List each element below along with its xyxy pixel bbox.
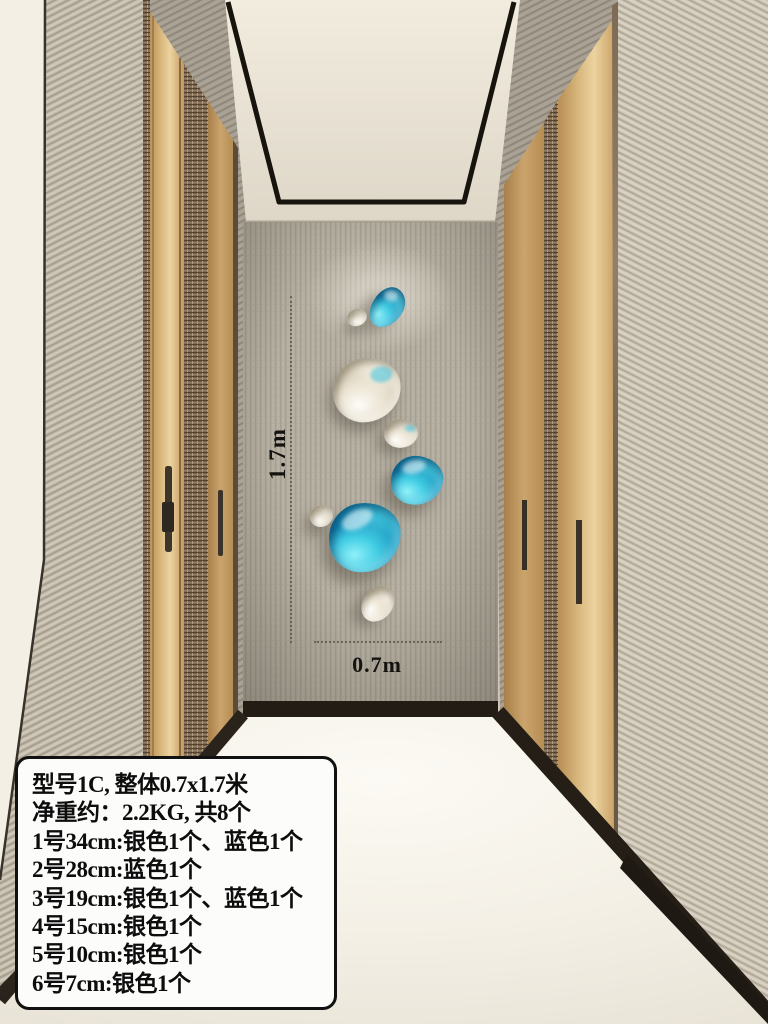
right-door-back	[504, 122, 544, 775]
left-corner-pillar	[238, 148, 243, 748]
left-pillar-edge-trim	[143, 0, 150, 850]
right-door-front-handle	[576, 520, 582, 604]
product-spec-box: 型号1C, 整体0.7x1.7米 净重约：2.2KG, 共8个 1号34cm:银…	[15, 756, 337, 1010]
back-wall-baseboard	[243, 701, 498, 717]
pebble-highlight	[401, 458, 427, 476]
left-door-back-trim	[233, 140, 238, 762]
pebble-blue-reflection	[370, 366, 393, 384]
left-door-front-lock-plate	[162, 502, 174, 532]
height-dimension-label: 1.7m	[265, 422, 291, 486]
pebble-highlight	[338, 504, 376, 535]
spec-line-size-4: 4号15cm:银色1个	[32, 913, 324, 941]
spec-line-weight: 净重约：2.2KG, 共8个	[32, 799, 324, 827]
pebble-blue-reflection	[404, 424, 416, 432]
spec-line-size-2: 2号28cm:蓝色1个	[32, 856, 324, 884]
right-door-back-handle	[522, 500, 527, 570]
spec-line-size-1: 1号34cm:银色1个、蓝色1个	[32, 828, 324, 856]
spec-line-model: 型号1C, 整体0.7x1.7米	[32, 771, 324, 799]
width-dimension-label: 0.7m	[345, 652, 409, 678]
pebble-highlight	[383, 290, 399, 303]
spec-line-size-3: 3号19cm:银色1个、蓝色1个	[32, 885, 324, 913]
spec-line-size-5: 5号10cm:银色1个	[32, 941, 324, 969]
left-door-back	[208, 101, 233, 800]
width-dimension-line	[314, 641, 442, 643]
right-door-front	[558, 12, 618, 862]
spec-line-size-6: 6号7cm:银色1个	[32, 970, 324, 998]
left-architrave-trim	[184, 64, 208, 836]
hallway-product-photo: 1.7m 0.7m 型号1C, 整体0.7x1.7米 净重约：2.2KG, 共8…	[0, 0, 768, 1024]
right-architrave-trim	[544, 100, 558, 795]
left-door-back-handle	[218, 490, 223, 556]
ceiling	[225, 0, 520, 222]
